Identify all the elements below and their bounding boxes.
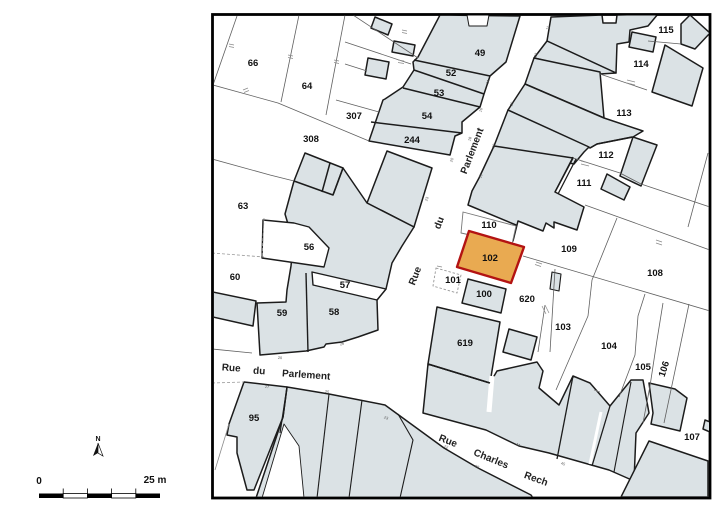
svg-text:56: 56 xyxy=(304,242,315,253)
svg-text:100: 100 xyxy=(476,289,492,300)
svg-text:105: 105 xyxy=(635,362,652,373)
svg-text:25 m: 25 m xyxy=(144,475,167,486)
svg-text:104: 104 xyxy=(601,341,618,352)
svg-text:244: 244 xyxy=(404,135,421,146)
svg-text:308: 308 xyxy=(303,134,319,145)
svg-text:57: 57 xyxy=(340,280,351,291)
svg-text:20: 20 xyxy=(278,356,283,360)
svg-text:49: 49 xyxy=(475,48,486,59)
svg-text:108: 108 xyxy=(647,268,663,279)
svg-text:27: 27 xyxy=(265,385,270,390)
svg-text:101: 101 xyxy=(445,275,462,286)
svg-text:103: 103 xyxy=(555,322,571,333)
svg-text:60: 60 xyxy=(230,272,241,283)
svg-text:307: 307 xyxy=(346,111,362,122)
svg-text:111: 111 xyxy=(577,178,593,189)
svg-text:25: 25 xyxy=(325,390,330,395)
svg-text:0: 0 xyxy=(36,476,42,487)
svg-text:619: 619 xyxy=(457,338,473,349)
svg-text:52: 52 xyxy=(446,68,457,79)
svg-text:54: 54 xyxy=(422,111,433,122)
svg-text:59: 59 xyxy=(277,308,288,319)
svg-text:110: 110 xyxy=(481,220,496,231)
svg-text:112: 112 xyxy=(598,150,613,161)
svg-text:58: 58 xyxy=(329,307,340,318)
svg-text:66: 66 xyxy=(248,58,259,69)
svg-text:114: 114 xyxy=(633,59,649,70)
svg-text:64: 64 xyxy=(302,81,313,92)
svg-text:109: 109 xyxy=(561,244,577,255)
svg-text:95: 95 xyxy=(249,413,260,424)
svg-text:102: 102 xyxy=(482,253,498,264)
svg-text:N: N xyxy=(95,436,100,443)
svg-text:Rue: Rue xyxy=(221,362,241,374)
svg-text:113: 113 xyxy=(616,108,631,119)
svg-text:du: du xyxy=(253,366,266,378)
svg-text:107: 107 xyxy=(684,432,700,443)
svg-text:115: 115 xyxy=(658,25,674,36)
svg-text:53: 53 xyxy=(434,88,445,99)
svg-text:620: 620 xyxy=(519,294,535,305)
svg-text:63: 63 xyxy=(238,201,249,212)
